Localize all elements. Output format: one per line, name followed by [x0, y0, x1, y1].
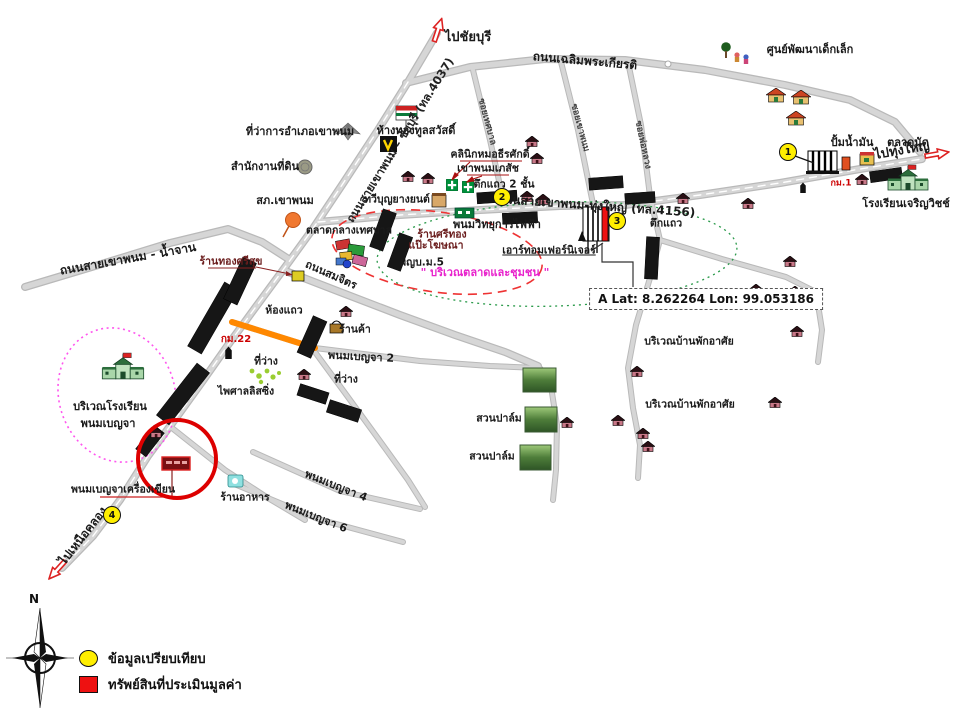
- house-icon: [421, 173, 435, 184]
- milestone-icon: [800, 182, 806, 193]
- house-icon: [855, 174, 869, 185]
- label-hongthaeo: ห้องแถว: [265, 305, 302, 316]
- marker-4: 4: [103, 506, 121, 524]
- marker-2: 2: [493, 188, 511, 206]
- house-icon: [768, 397, 782, 408]
- colorful-house-icon: [786, 111, 806, 125]
- label-district-office: ที่ว่าการอำเภอเขาพนม: [246, 126, 354, 138]
- coordinate-connector-line: [602, 243, 633, 287]
- row-building-icon: [589, 176, 624, 190]
- label-stationery-shop: พนมเบญจาเครื่องเขียน: [71, 484, 175, 495]
- house-icon: [741, 198, 755, 209]
- label-vacant-1: ที่ว่าง: [254, 356, 278, 367]
- label-residential-1: บริเวณบ้านพักอาศัย: [644, 336, 734, 347]
- label-school-charoen: โรงเรียนเจริญวิชช์: [862, 198, 949, 210]
- colorful-house-icon: [766, 88, 786, 102]
- label-land-office: สำนักงานที่ดิน: [231, 161, 299, 173]
- label-restaurant: ร้านอาหาร: [220, 492, 269, 503]
- label-paisan-leasing: ไพศาลลิสซิ่ง: [218, 386, 274, 397]
- label-srisuk-goldshop: ร้านทองศรีสุข: [200, 256, 263, 267]
- map-canvas: ไปชัยบุรี ถนนเฉลิมพระเกียรติ ศูนย์พัฒนาเ…: [0, 0, 960, 720]
- police-icon: [283, 213, 301, 238]
- label-school-zone-2: พนมเบญจา: [81, 418, 136, 430]
- label-palm-2: สวนปาล์ม: [469, 451, 514, 462]
- row-building-icon: [156, 363, 209, 425]
- restaurant-icon: [228, 475, 243, 487]
- coordinate-box: A Lat: 8.262264 Lon: 99.053186: [589, 288, 823, 310]
- compass-rose: [6, 608, 74, 708]
- market-icon: [335, 239, 367, 268]
- fuel-pump-icon: [842, 157, 850, 170]
- pharmacy-cross-icon: [462, 181, 474, 193]
- palm-photo: [523, 368, 556, 392]
- legend-yellow-circle-icon: [79, 650, 98, 667]
- label-central-market: ตลาดกลางเทศบาล: [306, 225, 392, 236]
- house-icon: [641, 441, 655, 452]
- label-gas-station: ปั้มน้ำมัน: [831, 137, 874, 149]
- legend-row-comparison: ข้อมูลเปรียบเทียบ: [79, 648, 206, 669]
- tree-icon: [721, 42, 731, 58]
- label-km1: กม.1: [830, 179, 851, 188]
- row-building-icon: [644, 237, 659, 280]
- row-building-icon: [297, 384, 329, 405]
- road-node-dot: [665, 61, 671, 67]
- palm-photos: [520, 368, 557, 470]
- label-rankha: ร้านค้า: [339, 324, 371, 335]
- label-rowhouse-east: ตึกแถว: [650, 218, 682, 229]
- label-vacant-2: ที่ว่าง: [334, 374, 358, 385]
- legend-appraised-label: ทรัพย์สินที่ประเมินมูลค่า: [108, 674, 242, 695]
- school-icon: [102, 353, 143, 379]
- label-child-center: ศูนย์พัฒนาเด็กเล็ก: [767, 44, 854, 56]
- house-icon: [630, 366, 644, 377]
- label-tawee-shop: ทวีบุญยางยนต์: [364, 194, 430, 205]
- house-icon: [783, 256, 797, 267]
- label-to-chaiburi: ไปชัยบุรี: [445, 31, 491, 45]
- label-pae-ads: แป๊ะโฆษณา: [408, 240, 463, 251]
- tyre-shop-icon: [432, 193, 446, 207]
- marker-1: 1: [779, 143, 797, 161]
- legend-row-appraised: ทรัพย์สินที่ประเมินมูลค่า: [79, 674, 242, 695]
- label-market-zone: " บริเวณตลาดและชุมชน ": [421, 267, 550, 279]
- label-furniture-shop: เอาร์ทอมเฟอร์นิเจอร์: [502, 245, 595, 256]
- label-pharmacy: เขาพนมเภสัช: [457, 163, 519, 174]
- marker-3: 3: [608, 212, 626, 230]
- label-km22: กม.22: [221, 335, 251, 346]
- seal-icon: [298, 160, 312, 174]
- school-zone-ellipse: [41, 312, 193, 477]
- legend-red-square-icon: [79, 676, 98, 693]
- house-icon: [611, 415, 625, 426]
- label-clinic: คลินิกหมอธีรศักดิ์: [450, 149, 529, 160]
- house-icon: [560, 417, 574, 428]
- row-building-icon: [326, 400, 361, 423]
- house-icon: [790, 326, 804, 337]
- palm-photo: [520, 445, 551, 470]
- label-residential-2: บริเวณบ้านพักอาศัย: [645, 399, 735, 410]
- compass-north-label: N: [29, 592, 39, 606]
- house-icon: [530, 153, 544, 164]
- house-icon: [297, 369, 311, 380]
- legend-comparison-label: ข้อมูลเปรียบเทียบ: [108, 648, 206, 669]
- children-icon: [734, 52, 748, 64]
- house-icon: [525, 136, 539, 147]
- clinic-cross-icon: [446, 179, 458, 191]
- flea-market-icon: [860, 152, 874, 165]
- label-palm-1: สวนปาล์ม: [476, 413, 521, 424]
- palm-photo: [525, 407, 557, 432]
- electric-shop-icon: [455, 208, 474, 218]
- house-icon: [339, 306, 353, 317]
- label-school-zone-1: บริเวณโรงเรียน: [73, 401, 147, 413]
- label-police-station: สภ.เขาพนม: [256, 195, 314, 207]
- vacant-scribble-icon: [250, 369, 281, 385]
- house-icon: [401, 171, 415, 182]
